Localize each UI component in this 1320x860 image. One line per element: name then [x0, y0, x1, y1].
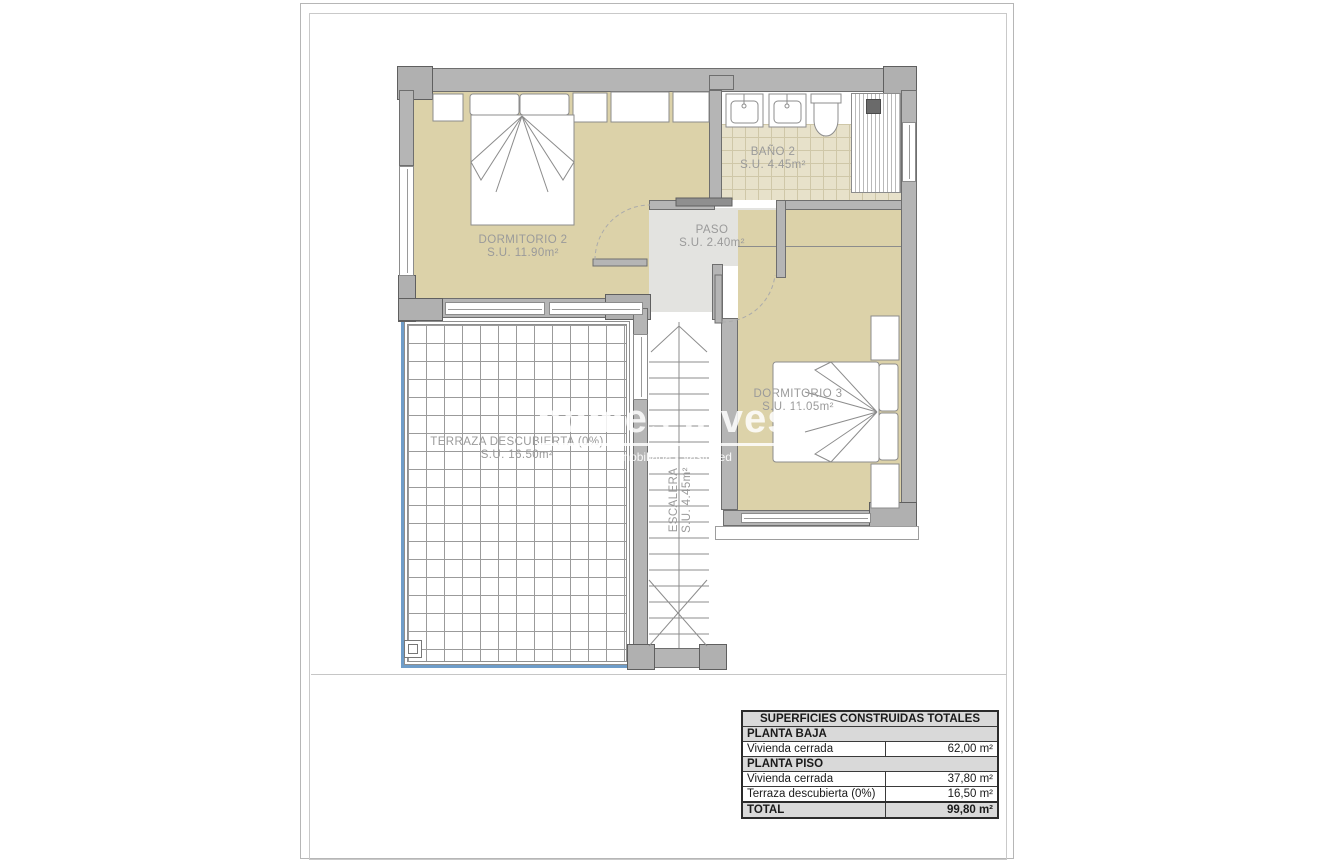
floor-plan: DORMITORIO 2 S.U. 11.90m² BAÑO 2 S.U. 4.… [401, 70, 919, 670]
label-dormitorio2: DORMITORIO 2 S.U. 11.90m² [443, 234, 603, 260]
room-name: ESCALERA [668, 430, 681, 570]
room-name: TERRAZA DESCUBIERTA (0%) [417, 436, 617, 449]
label-paso: PASO S.U. 2.40m² [652, 224, 772, 250]
wardrobe-dormitorio2-icon [611, 92, 709, 122]
table-total-row: TOTAL 99,80 m² [742, 802, 998, 818]
plot-boundary-line [311, 674, 1007, 675]
label-bano2: BAÑO 2 S.U. 4.45m² [693, 146, 853, 172]
label-escalera: ESCALERA S.U. 4.45m² [668, 430, 700, 570]
room-area: S.U. 11.90m² [443, 247, 603, 260]
room-name: PASO [652, 224, 772, 237]
table-header-row: SUPERFICIES CONSTRUIDAS TOTALES [742, 711, 998, 727]
room-name: BAÑO 2 [693, 146, 853, 159]
room-name: DORMITORIO 2 [443, 234, 603, 247]
room-area: S.U. 16.50m² [417, 449, 617, 462]
room-area: S.U. 4.45m² [681, 430, 694, 570]
surfaces-summary-table: SUPERFICIES CONSTRUIDAS TOTALES PLANTA B… [741, 710, 999, 819]
door-dormitorio3 [715, 275, 775, 323]
table-row: Vivienda cerrada 37,80 m² [742, 772, 998, 787]
label-dormitorio3: DORMITORIO 3 S.U. 11.05m² [718, 388, 878, 414]
door-bathroom-sliding [676, 198, 732, 206]
bed-dormitorio2-icon [433, 93, 607, 225]
room-name: DORMITORIO 3 [718, 388, 878, 401]
table-row: PLANTA PISO [742, 757, 998, 772]
room-area: S.U. 11.05m² [718, 401, 878, 414]
room-area: S.U. 2.40m² [652, 237, 772, 250]
table-row: Terraza descubierta (0%) 16,50 m² [742, 787, 998, 803]
table-row: PLANTA BAJA [742, 727, 998, 742]
double-sink-icon [726, 94, 806, 127]
room-area: S.U. 4.45m² [693, 159, 853, 172]
table-title: SUPERFICIES CONSTRUIDAS TOTALES [742, 711, 998, 727]
drawing-sheet: DORMITORIO 2 S.U. 11.90m² BAÑO 2 S.U. 4.… [300, 3, 1014, 859]
label-terraza: TERRAZA DESCUBIERTA (0%) S.U. 16.50m² [417, 436, 617, 462]
toilet-icon [811, 94, 841, 136]
table-row: Vivienda cerrada 62,00 m² [742, 742, 998, 757]
